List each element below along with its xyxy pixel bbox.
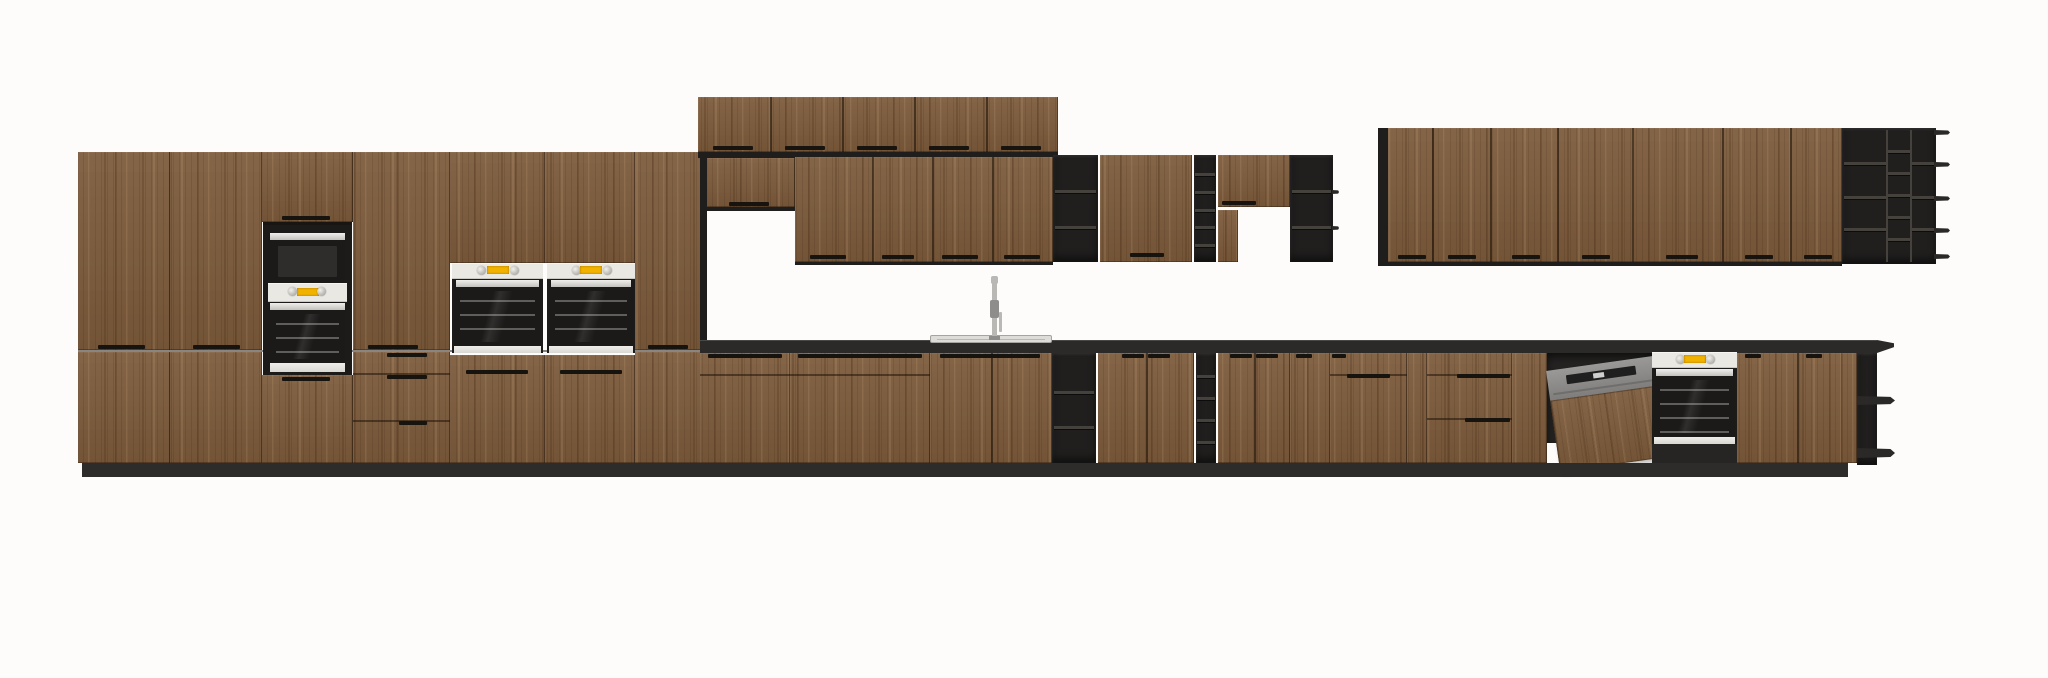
wall-cabinets-right-gap (1632, 128, 1634, 262)
base-doors-4[interactable] (1737, 353, 1857, 463)
door-handle (1582, 255, 1610, 259)
base-drawers-1-gap (700, 374, 790, 376)
faucet-body (990, 300, 999, 318)
door-handle (857, 146, 897, 150)
door-handle (1222, 201, 1256, 205)
door-handle (387, 375, 427, 379)
door-handle (1130, 253, 1164, 257)
tall-cabinet-door-lower-6[interactable] (545, 355, 635, 463)
base-doors-2[interactable] (1218, 353, 1290, 463)
door-handle (798, 354, 922, 358)
sink-faucet[interactable] (986, 276, 1004, 340)
tower-display (297, 288, 319, 296)
oven-glass-door (454, 287, 541, 346)
door-handle (942, 255, 978, 259)
tower-top-door[interactable] (262, 152, 353, 222)
oven-display (487, 266, 509, 274)
cubby-shelf-line (1195, 226, 1215, 229)
wall-cabinet-upper-short[interactable] (1218, 155, 1290, 207)
sink-base-cabinet-gap (991, 353, 993, 463)
base-drawers-1[interactable] (700, 353, 790, 463)
oven-knob-right (1706, 355, 1715, 364)
door-handle (1465, 418, 1510, 422)
tower-oven-racks (276, 314, 339, 359)
door-handle (1148, 354, 1170, 358)
oven-knob-left (477, 266, 486, 275)
base-end-shelf-unit[interactable] (1857, 353, 1895, 465)
tower-knob-left (288, 287, 297, 296)
tall-cabinet-door-upper-2[interactable] (170, 152, 262, 350)
oven-bottom-trim (1654, 437, 1735, 444)
built-in-oven-mid[interactable] (547, 263, 635, 353)
stacked-wall-cabinets-gap (914, 97, 916, 152)
door-handle (1347, 374, 1390, 378)
cubby-shelf-line (1197, 375, 1215, 378)
wall-cabinet-door-mid[interactable] (1100, 155, 1192, 262)
oven-glass-door (549, 287, 633, 346)
base-drawers-3[interactable] (1330, 353, 1407, 463)
tower-oven-bottom-trim (270, 363, 345, 372)
built-in-oven-left[interactable] (452, 263, 543, 353)
wall-end-side-tab (1934, 196, 1950, 201)
door-handle (1666, 255, 1698, 259)
cubby-shelf-line (1197, 419, 1215, 422)
oven-control-panel (452, 263, 543, 279)
wall-end-shelf-right (1912, 228, 1934, 231)
right-wall-bottom-edge (1378, 262, 1842, 266)
toe-kick (82, 463, 1848, 477)
wall-small-bottom-edge (707, 207, 795, 211)
stacked-wall-cabinets-gap (986, 97, 988, 152)
microwave-screen (278, 246, 337, 277)
door-handle (1804, 255, 1832, 259)
cubby-shelf-line (1197, 441, 1215, 444)
tall-cabinet-door-upper-4[interactable] (353, 152, 450, 350)
microwave-trim-bar (270, 233, 345, 240)
shelf-line (1055, 226, 1096, 229)
door-handle (1004, 255, 1040, 259)
oven-under-shadow (1652, 444, 1737, 463)
stacked-wall-cabinets-gap (770, 97, 772, 152)
wall-cabinets-mid-gap (932, 157, 934, 262)
dishwasher-display-segment (1593, 372, 1605, 378)
door-handle (1398, 255, 1426, 259)
door-handle (1448, 255, 1476, 259)
door-handle (882, 255, 914, 259)
tall-cabinet-door-lower-7[interactable] (635, 352, 703, 463)
wall-end-cubby-line (1888, 194, 1910, 197)
wall-end-cubby-line (1888, 216, 1910, 219)
dishwasher-display-bar (1566, 366, 1636, 385)
stacked-wall-cabinets-gap (842, 97, 844, 152)
base-cubby-column[interactable] (1196, 353, 1216, 463)
wall-cabinets-right-gap (1722, 128, 1724, 262)
oven-display (1684, 355, 1706, 363)
wall-cabinets-right-gap (1432, 128, 1434, 262)
oven-racks (1660, 380, 1729, 433)
tall-cabinet-door-lower-2[interactable] (170, 352, 262, 463)
door-handle (729, 202, 769, 206)
sink-base-cabinet[interactable] (930, 353, 1052, 463)
oven-knob-right (510, 266, 519, 275)
wall-mid-bottom-edge (795, 262, 1053, 265)
wall-cabinets-right-gap (1790, 128, 1792, 262)
wall-cabinets-right-gap (1557, 128, 1559, 262)
oven-glass-door (1654, 376, 1735, 437)
wall-end-shelf-right (1912, 196, 1934, 199)
oven-bottom-trim (454, 346, 541, 353)
shelf-tab (1332, 226, 1339, 230)
tall-cabinet-door-upper-5[interactable] (450, 152, 545, 263)
tower-knob-right (317, 287, 326, 296)
wall-end-body (1842, 128, 1936, 264)
door-handle (1296, 354, 1312, 358)
door-handle (648, 345, 688, 349)
oven-control-panel (1652, 352, 1737, 368)
base-door-3[interactable] (1290, 353, 1330, 463)
wall-cabinets-mid-gap (872, 157, 874, 262)
tall-cabinet-door-upper-6[interactable] (545, 152, 635, 263)
cubby-shelf-line (1195, 191, 1215, 194)
door-handle (1457, 374, 1510, 378)
wall-end-shelf-left (1844, 196, 1886, 199)
door-handle (193, 345, 240, 349)
tall-cabinet-door-upper-7[interactable] (635, 152, 703, 350)
faucet-base (989, 336, 1000, 340)
wall-side-strip[interactable] (1218, 210, 1238, 262)
door-handle (940, 354, 1040, 358)
door-handle (560, 370, 622, 374)
cubby-shelf-line (1195, 173, 1215, 176)
tower-gap (263, 222, 352, 225)
tall-cabinet-door-lower-5[interactable] (450, 355, 545, 463)
door-handle (1001, 146, 1041, 150)
wall-end-shelf-left (1844, 228, 1886, 231)
shelf-line (1054, 426, 1094, 429)
door-handle (98, 345, 145, 349)
shelf-line (1054, 391, 1094, 394)
door-handle (708, 354, 782, 358)
dishwasher[interactable] (1547, 348, 1652, 470)
wall-end-shelf-left (1844, 162, 1886, 165)
door-handle (929, 146, 969, 150)
base-drawers-4[interactable] (1427, 353, 1512, 463)
faucet-lever (999, 312, 1002, 332)
oven-racks (555, 291, 627, 342)
countertop-end-tip (1877, 340, 1894, 353)
door-handle (1332, 354, 1346, 358)
cubby-shelf-line (1197, 397, 1215, 400)
door-handle (810, 255, 846, 259)
tall-end-panel (700, 152, 707, 343)
base-end-shelf-2 (1857, 448, 1895, 458)
wall-end-side-tab (1934, 228, 1950, 233)
wall-cabinets-right-gap (1490, 128, 1492, 262)
base-doors-1[interactable] (1098, 353, 1194, 463)
door-handle (785, 146, 825, 150)
door-handle (282, 377, 330, 381)
wall-open-shelf-b[interactable] (1290, 155, 1333, 262)
door-handle (1122, 354, 1144, 358)
door-handle (282, 216, 330, 220)
shelf-line (1292, 190, 1331, 193)
oven-racks (460, 291, 535, 342)
tower-oven-glass (270, 310, 345, 363)
kitchen-scene (0, 0, 2048, 678)
wall-end-cubby-line (1888, 172, 1910, 175)
cubby-shelf-line (1195, 209, 1215, 212)
wall-cabinets-mid-gap (992, 157, 994, 262)
oven-display (580, 266, 602, 274)
tall-cabinet-door-lower-1[interactable] (78, 352, 170, 463)
wall-end-shelf-unit[interactable] (1842, 128, 1950, 264)
door-handle (1745, 255, 1773, 259)
door-handle (1230, 354, 1252, 358)
wall-cubby-column[interactable] (1194, 155, 1216, 262)
cubby-shelf-line (1195, 244, 1215, 247)
built-in-oven-base[interactable] (1652, 352, 1737, 444)
wall-end-side-tab (1934, 130, 1950, 135)
shelf-tab (1332, 190, 1339, 194)
base-drawers-2[interactable] (790, 353, 930, 463)
door-handle (387, 353, 427, 357)
tower-oven-handle-bar (270, 303, 345, 310)
oven-handle-bar (456, 280, 539, 287)
tall-drawer-stack[interactable] (353, 352, 450, 463)
oven-microwave-tower[interactable] (263, 222, 352, 375)
door-handle (1745, 354, 1761, 358)
oven-knob-right (603, 266, 612, 275)
right-wall-side-panel (1378, 128, 1388, 264)
wall-cabinets-mid[interactable] (795, 157, 1053, 262)
base-doors-2-gap (1254, 353, 1256, 463)
base-doors-1-gap (1146, 353, 1148, 463)
wall-cabinet-small[interactable] (707, 158, 795, 207)
door-handle (399, 421, 427, 425)
shelf-line (1055, 190, 1096, 193)
microwave-glass (270, 240, 345, 283)
base-doors-4-gap (1797, 353, 1799, 463)
base-filler-1[interactable] (1407, 353, 1427, 463)
door-handle (466, 370, 528, 374)
base-open-shelf[interactable] (1052, 353, 1096, 463)
tower-bottom-door[interactable] (262, 375, 353, 463)
wall-end-shelf-right (1912, 162, 1934, 165)
door-handle (1806, 354, 1822, 358)
tower-control-panel (268, 283, 347, 302)
wall-end-cubby-line (1888, 238, 1910, 241)
base-filler-2[interactable] (1512, 353, 1547, 463)
oven-control-panel (547, 263, 635, 279)
tall-cabinet-door-upper-1[interactable] (78, 152, 170, 350)
door-handle (368, 345, 418, 349)
oven-handle-bar (1656, 369, 1733, 376)
base-drawers-2-gap (790, 374, 930, 376)
base-end-shelf-1 (1857, 396, 1895, 405)
wall-open-shelf-a[interactable] (1053, 155, 1098, 262)
wall-end-side-tab (1934, 162, 1950, 167)
door-handle (1256, 354, 1278, 358)
oven-handle-bar (551, 280, 631, 287)
shelf-line (1292, 226, 1331, 229)
wall-end-cubby-line (1888, 150, 1910, 153)
dishwasher-wood-panel (1550, 386, 1667, 472)
door-handle (1512, 255, 1540, 259)
door-handle (713, 146, 753, 150)
wall-end-side-tab (1934, 254, 1950, 259)
oven-bottom-trim (549, 346, 633, 353)
dishwasher-door (1546, 356, 1667, 472)
stacked-wall-cabinets[interactable] (698, 97, 1058, 152)
wall-cabinets-right[interactable] (1388, 128, 1842, 262)
